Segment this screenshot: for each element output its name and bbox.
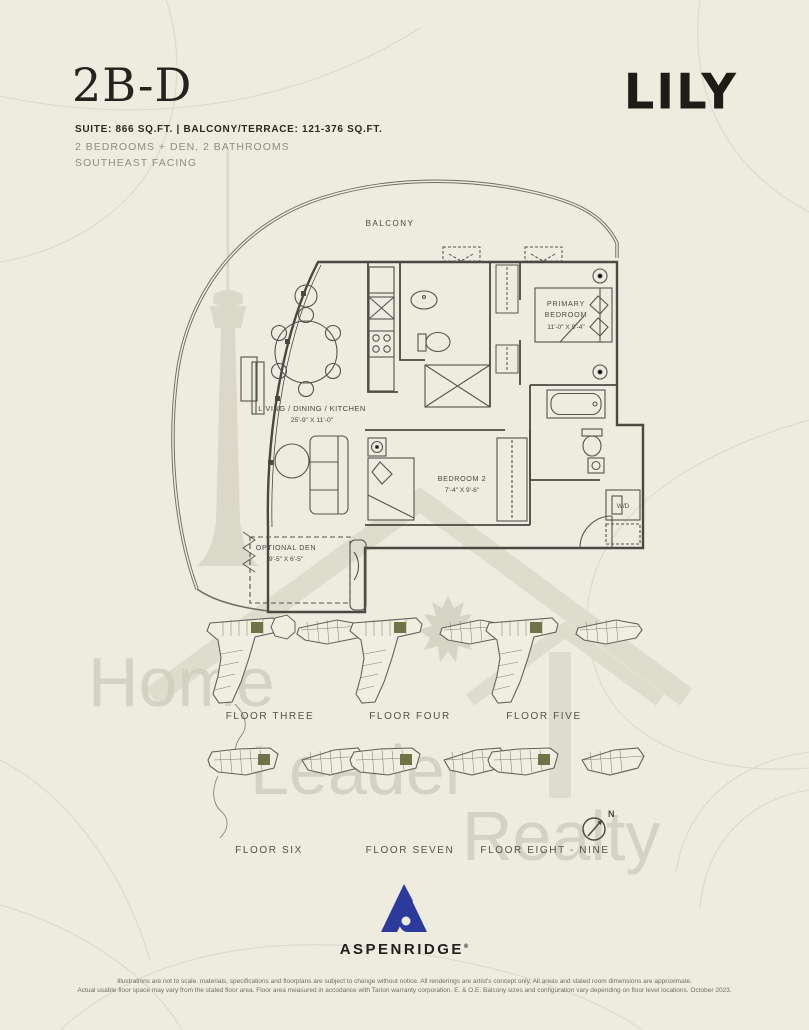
- unit-code-title: 2B-D: [72, 58, 192, 112]
- living-room-label: LIVING / DINING / KITCHEN: [258, 404, 365, 413]
- developer-wordmark: ASPENRIDGE: [340, 941, 464, 958]
- ensuite-fixtures: [547, 390, 605, 473]
- balcony-doors: [443, 247, 562, 261]
- balcony-label: BALCONY: [366, 219, 415, 228]
- laundry-closet: [606, 490, 640, 544]
- primary-bedroom-label2: BEDROOM: [545, 310, 588, 319]
- kitchen-fixtures: [369, 267, 394, 391]
- floor-six-label: FLOOR SIX: [189, 845, 349, 856]
- primary-bedroom-label: PRIMARY: [547, 299, 585, 308]
- facing-line: SOUTHEAST FACING: [75, 157, 197, 169]
- primary-closets: [496, 265, 518, 373]
- floorplan-page: Home Leader Realty: [0, 0, 809, 1030]
- laundry-label: W/D: [617, 503, 630, 510]
- bedroom2-dims: 7'-4" X 9'-6": [445, 487, 480, 494]
- disclaimer-line2: Actual usable floor space may vary from …: [60, 987, 749, 996]
- entry-door: [580, 516, 612, 548]
- main-floorplan: BALCONY LIVING / DINING / KITCHEN 25'-9"…: [173, 181, 643, 612]
- primary-bedroom-dims: 11'-0" X 9'-4": [547, 324, 585, 331]
- den-dims: 9'-5" X 6'-5": [269, 556, 304, 563]
- aspenridge-logo-icon: [381, 884, 427, 932]
- compass-north-label: N: [608, 809, 615, 819]
- rooms-line: 2 BEDROOMS + DEN, 2 BATHROOMS: [75, 141, 290, 153]
- living-room-dims: 25'-9" X 11'-0": [291, 417, 334, 424]
- den-label: OPTIONAL DEN: [256, 543, 316, 552]
- developer-name: ASPENRIDGE®: [284, 941, 524, 958]
- bedroom2-label: BEDROOM 2: [438, 474, 487, 483]
- legal-disclaimer: Illustrations are not to scale. material…: [60, 978, 749, 995]
- trademark-symbol: ®: [464, 944, 468, 950]
- suite-size-line: SUITE: 866 SQ.FT. | BALCONY/TERRACE: 121…: [75, 124, 382, 135]
- bathroom1-fixtures: [411, 291, 450, 352]
- floor-five-label: FLOOR FIVE: [464, 711, 624, 722]
- disclaimer-line1: Illustrations are not to scale. material…: [60, 978, 749, 987]
- floor-eight-nine-label: FLOOR EIGHT - NINE: [465, 845, 625, 856]
- entry-closet: [425, 365, 490, 407]
- page-graphics: Home Leader Realty: [0, 0, 809, 1030]
- floor-three-label: FLOOR THREE: [190, 711, 350, 722]
- watermark-word: Realty: [462, 797, 660, 875]
- cn-tower-watermark: [197, 150, 259, 566]
- building-brand-logo: LILY: [560, 63, 738, 120]
